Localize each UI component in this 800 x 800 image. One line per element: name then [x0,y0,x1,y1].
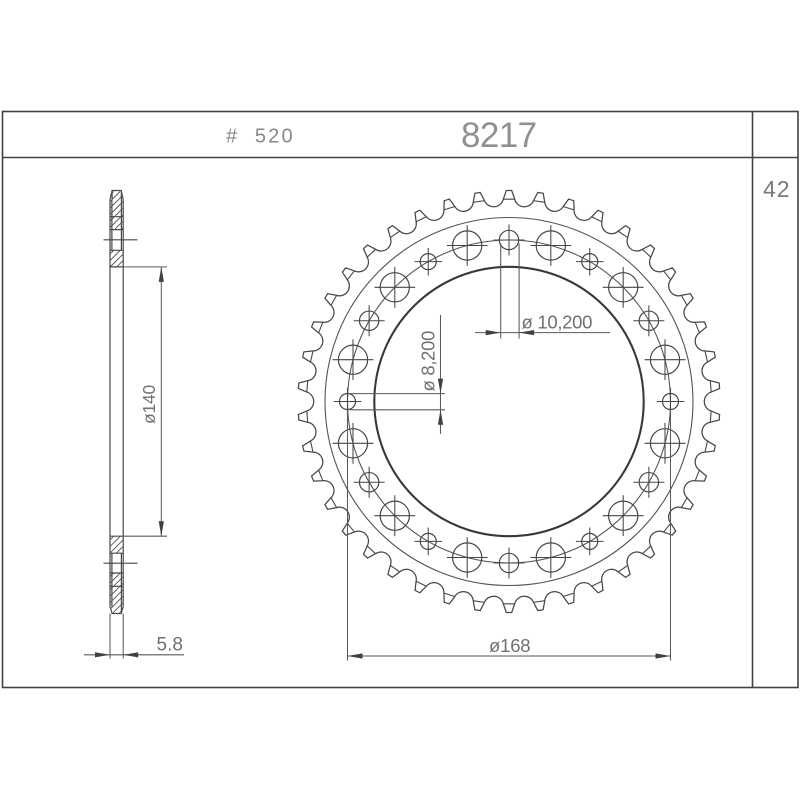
svg-text:42: 42 [763,176,791,202]
svg-text:ø168: ø168 [489,635,530,656]
svg-text:ø 8,200: ø 8,200 [418,331,439,392]
svg-text:5.8: 5.8 [157,635,183,656]
svg-text:ø 10,200: ø 10,200 [522,312,593,333]
svg-text:ø140: ø140 [139,384,159,424]
svg-text:# 520: # 520 [226,126,295,148]
svg-text:8217: 8217 [461,116,536,155]
